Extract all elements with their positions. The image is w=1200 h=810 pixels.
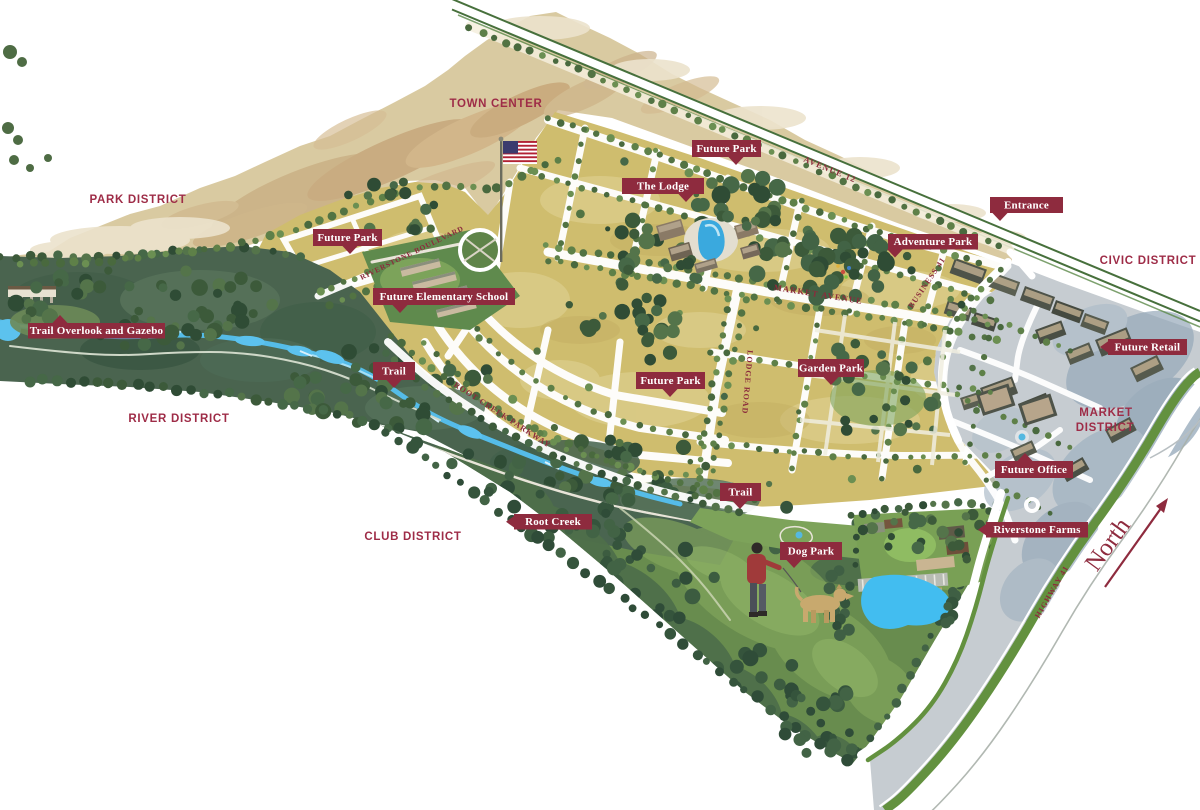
svg-text:Root Creek: Root Creek [525, 516, 582, 528]
svg-text:Future Park: Future Park [640, 375, 701, 387]
svg-text:RIVER DISTRICT: RIVER DISTRICT [128, 413, 229, 425]
svg-text:Entrance: Entrance [1004, 200, 1049, 212]
svg-text:PARK DISTRICT: PARK DISTRICT [89, 194, 186, 206]
svg-text:Future Office: Future Office [1001, 464, 1067, 476]
svg-text:CIVIC DISTRICT: CIVIC DISTRICT [1100, 255, 1197, 267]
svg-text:Trail: Trail [728, 487, 752, 499]
svg-text:Adventure Park: Adventure Park [894, 236, 973, 248]
svg-text:Future Elementary School: Future Elementary School [380, 291, 509, 303]
svg-text:CLUB DISTRICT: CLUB DISTRICT [364, 531, 461, 543]
svg-text:MARKET: MARKET [1079, 407, 1132, 419]
svg-text:Trail Overlook and Gazebo: Trail Overlook and Gazebo [30, 325, 164, 337]
svg-text:Future Park: Future Park [317, 232, 378, 244]
svg-text:The Lodge: The Lodge [637, 181, 689, 193]
svg-text:Dog Park: Dog Park [788, 546, 835, 558]
svg-text:Riverstone Farms: Riverstone Farms [993, 524, 1081, 536]
svg-text:Future Park: Future Park [696, 143, 757, 155]
svg-text:Garden Park: Garden Park [799, 363, 864, 375]
svg-text:Trail: Trail [382, 366, 406, 378]
svg-text:TOWN CENTER: TOWN CENTER [449, 98, 542, 110]
svg-text:DISTRICT: DISTRICT [1076, 422, 1135, 434]
svg-text:Future Retail: Future Retail [1115, 342, 1181, 354]
